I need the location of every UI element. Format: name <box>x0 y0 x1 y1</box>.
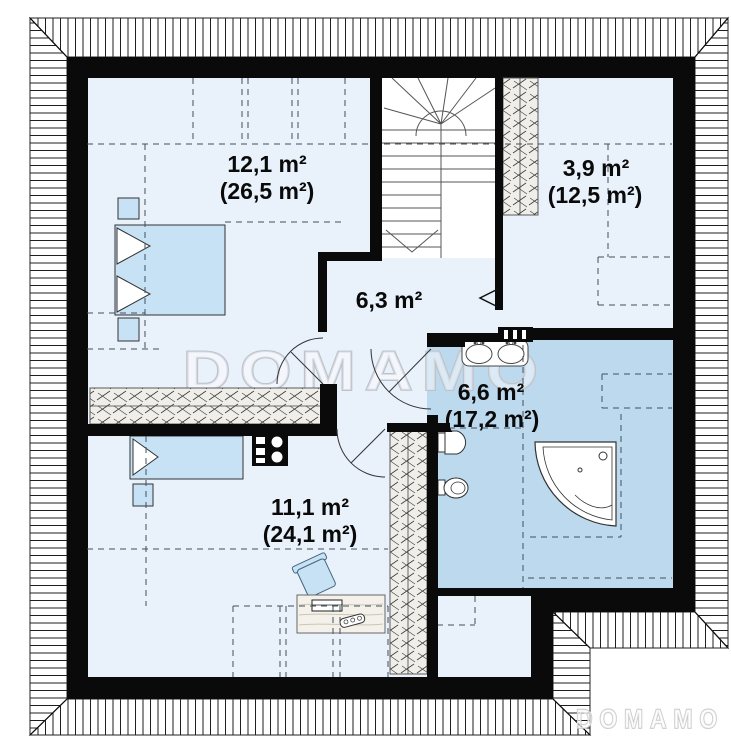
wall-bathroom-left <box>427 415 438 677</box>
wardrobe-bedroom-top <box>90 388 322 424</box>
wall-bathroom-top-right <box>533 328 673 340</box>
wall-door-jamb <box>320 384 337 430</box>
nightstand <box>118 318 139 341</box>
wall-hall-bottom <box>387 423 450 432</box>
floor-plan-drawing: DOMAMO <box>0 0 731 738</box>
double-bed <box>115 225 225 315</box>
roof-eave-left <box>30 18 67 735</box>
floor-plan: DOMAMO <box>0 0 731 738</box>
roof-eave-right <box>695 18 728 648</box>
wall-hall-bedroom <box>318 252 327 332</box>
room-label-bedroom-top-total: (26,5 m²) <box>220 178 315 204</box>
nightstand <box>118 198 139 219</box>
desk <box>297 595 385 633</box>
sink <box>466 345 492 364</box>
room-label-top-right: 3,9 m² <box>563 155 630 181</box>
room-label-top-right-total: (12,5 m²) <box>548 182 643 208</box>
sink-vanity <box>462 340 528 366</box>
roof-eave-bottom <box>30 699 590 735</box>
toilet <box>438 431 466 454</box>
wall-bedroom-divider <box>87 424 337 436</box>
watermark-corner: DOMAMO <box>576 704 724 734</box>
wall-bathroom-top <box>427 333 465 347</box>
wardrobe-corridor <box>390 430 427 674</box>
dresser <box>252 432 288 466</box>
room-label-bathroom: 6,6 m² <box>458 379 525 405</box>
bidet <box>438 478 468 498</box>
wall-under-stair <box>318 252 382 261</box>
roof-eave-top <box>30 18 728 57</box>
room-label-bedroom-top: 12,1 m² <box>227 151 307 177</box>
sink <box>498 345 524 364</box>
single-bed <box>130 436 243 479</box>
staircase-floor <box>382 78 495 258</box>
room-label-bedroom-bottom: 11,1 m² <box>271 494 349 520</box>
wall-stair-right <box>495 78 503 310</box>
wall-behind-vanity <box>465 333 498 342</box>
room-label-hall: 6,3 m² <box>356 287 423 313</box>
room-label-bedroom-bottom-total: (24,1 m²) <box>263 521 358 547</box>
wall-bathroom-bottom <box>438 588 531 596</box>
wardrobe-room-top-right <box>503 78 538 215</box>
room-label-bathroom-total: (17,2 m²) <box>445 406 540 432</box>
wall-vent-grille <box>498 327 533 342</box>
nightstand <box>133 484 153 506</box>
wall-stair-left <box>370 78 382 258</box>
